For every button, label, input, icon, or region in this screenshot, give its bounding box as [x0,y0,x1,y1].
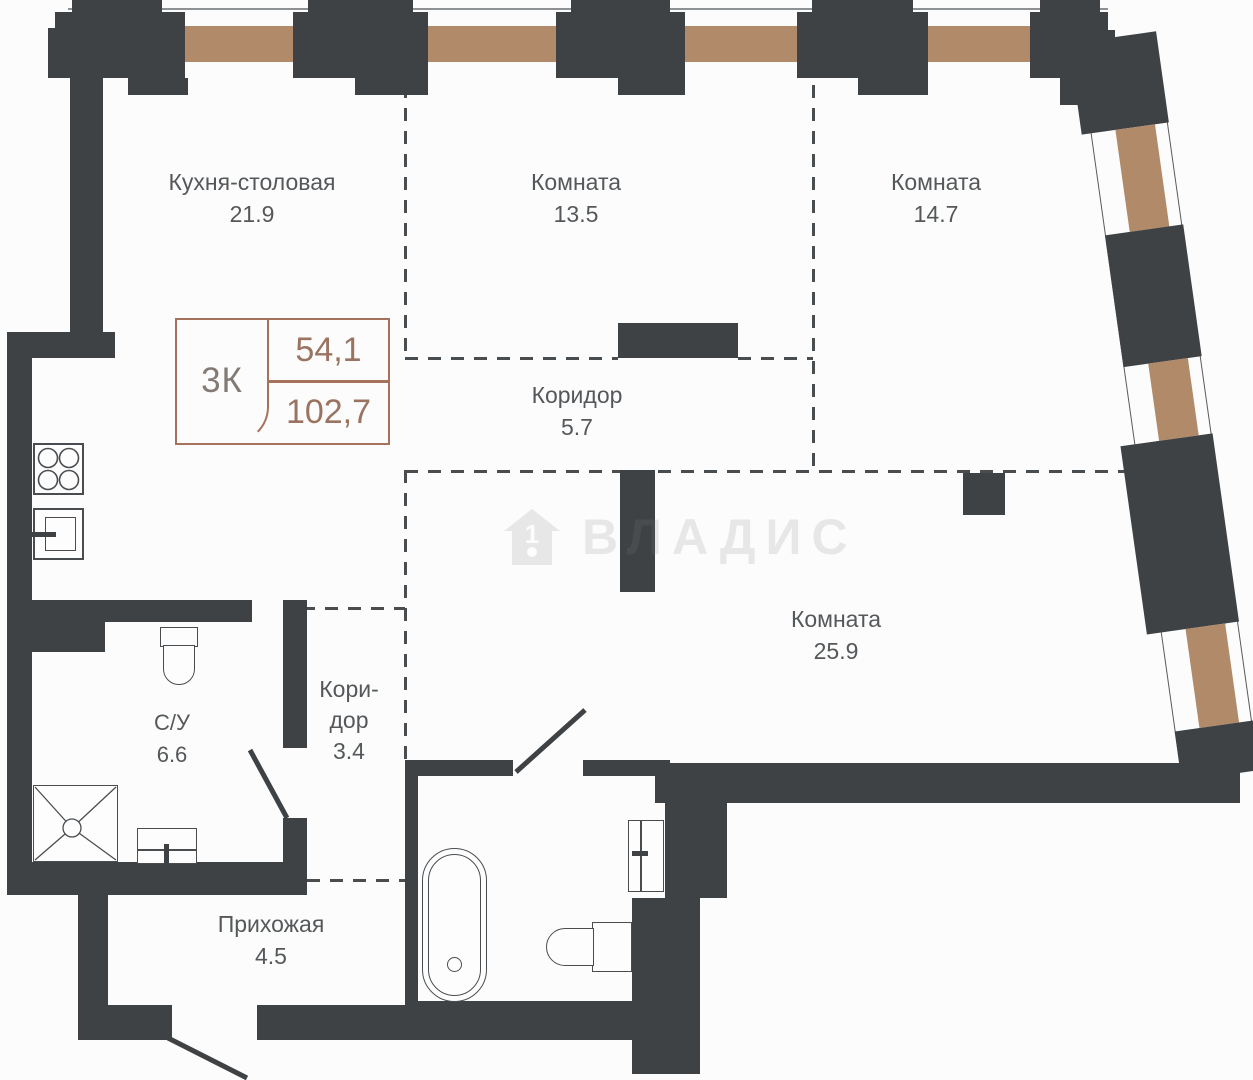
wall-segment [1120,433,1238,634]
window-beam [428,26,556,62]
room-name: Комната [531,166,621,198]
bathtub-icon [422,848,487,1002]
room-name: дор [329,705,368,736]
wall-segment [618,78,685,95]
boundary-room13-room14 [812,85,815,470]
wall-segment [405,760,418,1023]
floor-plan: Кухня-столовая 21.9 Комната 13.5 Комната… [0,0,1253,1080]
room-label-room13: Комната 13.5 [476,166,676,230]
door-swing-line [516,710,585,772]
wall-segment [7,332,115,358]
wall-segment [665,803,727,898]
wall-segment [632,898,700,1074]
window-beam [1148,358,1198,441]
window-beam [1186,623,1240,728]
window-beam [928,26,1030,62]
boundary-kitchen-corridor3 [302,607,405,610]
wall-pillar [556,12,685,78]
wall-segment [128,78,188,95]
wall-segment [1069,31,1168,134]
boundary-kitchen-room13 [404,85,407,358]
room-area: 14.7 [914,198,959,230]
wall-segment [963,473,1005,515]
room-label-kitchen: Кухня-столовая 21.9 [122,166,382,230]
unit-total-area: 102,7 [269,382,388,443]
wall-segment [25,862,307,895]
room-label-bathroom: С/У 6.6 [112,707,232,771]
wall-segment [1104,224,1201,367]
kitchen-sink-icon [33,508,84,560]
wall-segment [78,1005,172,1040]
wall-segment [355,78,428,95]
room-name: Кухня-столовая [169,166,336,198]
window-beam [185,26,293,62]
room-area: 4.5 [255,940,287,972]
boundary-corridor5-room25 [405,470,1138,473]
washbasin-2-icon [628,820,664,892]
boundary-corridor5-room14 [738,357,813,360]
room-label-corridor3: Кори- дор 3.4 [299,674,399,767]
wall-segment [28,600,105,652]
room-label-room25: Комната 25.9 [736,603,936,667]
room-name: С/У [154,707,190,739]
wall-pillar [293,12,428,78]
window-beam [1115,124,1169,232]
unit-type: 3К [177,320,269,443]
room-label-hallway: Прихожая 4.5 [171,908,371,972]
wall-segment [655,763,1240,803]
wall-segment [405,1001,635,1023]
room-label-corridor5: Коридор 5.7 [477,379,677,443]
room-area: 6.6 [157,739,188,771]
boundary-corridor3-room25 [404,470,407,763]
unit-living-area: 54,1 [269,320,388,380]
stove-icon [33,443,84,495]
unit-info-box: 3К 54,1 102,7 [175,318,390,445]
door-swing-line [250,750,287,818]
door-swing-line [168,1038,247,1078]
facade-slanted-wall [1082,61,1253,781]
wall-segment [618,323,738,358]
wall-pillar [797,12,928,78]
boundary-room13-corridor5 [405,357,618,360]
room-area: 25.9 [814,635,859,667]
room-area: 3.4 [333,736,365,767]
wall-segment [858,78,928,95]
wall-segment [620,470,655,592]
room-area: 13.5 [554,198,599,230]
room-name: Комната [791,603,881,635]
room-name: Коридор [532,379,623,411]
house-number-1-icon: 1 [500,505,564,569]
washbasin-icon [137,828,197,864]
watermark: 1 ВЛАДИС [500,505,858,569]
room-name: Комната [891,166,981,198]
room-name: Прихожая [218,908,325,940]
room-area: 5.7 [561,411,593,443]
room-label-room14: Комната 14.7 [836,166,1036,230]
wall-segment [48,28,90,78]
svg-text:1: 1 [525,519,539,549]
wall-segment [415,760,513,776]
wall-segment [70,78,103,332]
room-area: 21.9 [230,198,275,230]
shower-icon [33,785,118,862]
window-beam [685,26,797,62]
boundary-corridor3-hallway [307,879,418,882]
room-name: Кори- [319,674,379,705]
